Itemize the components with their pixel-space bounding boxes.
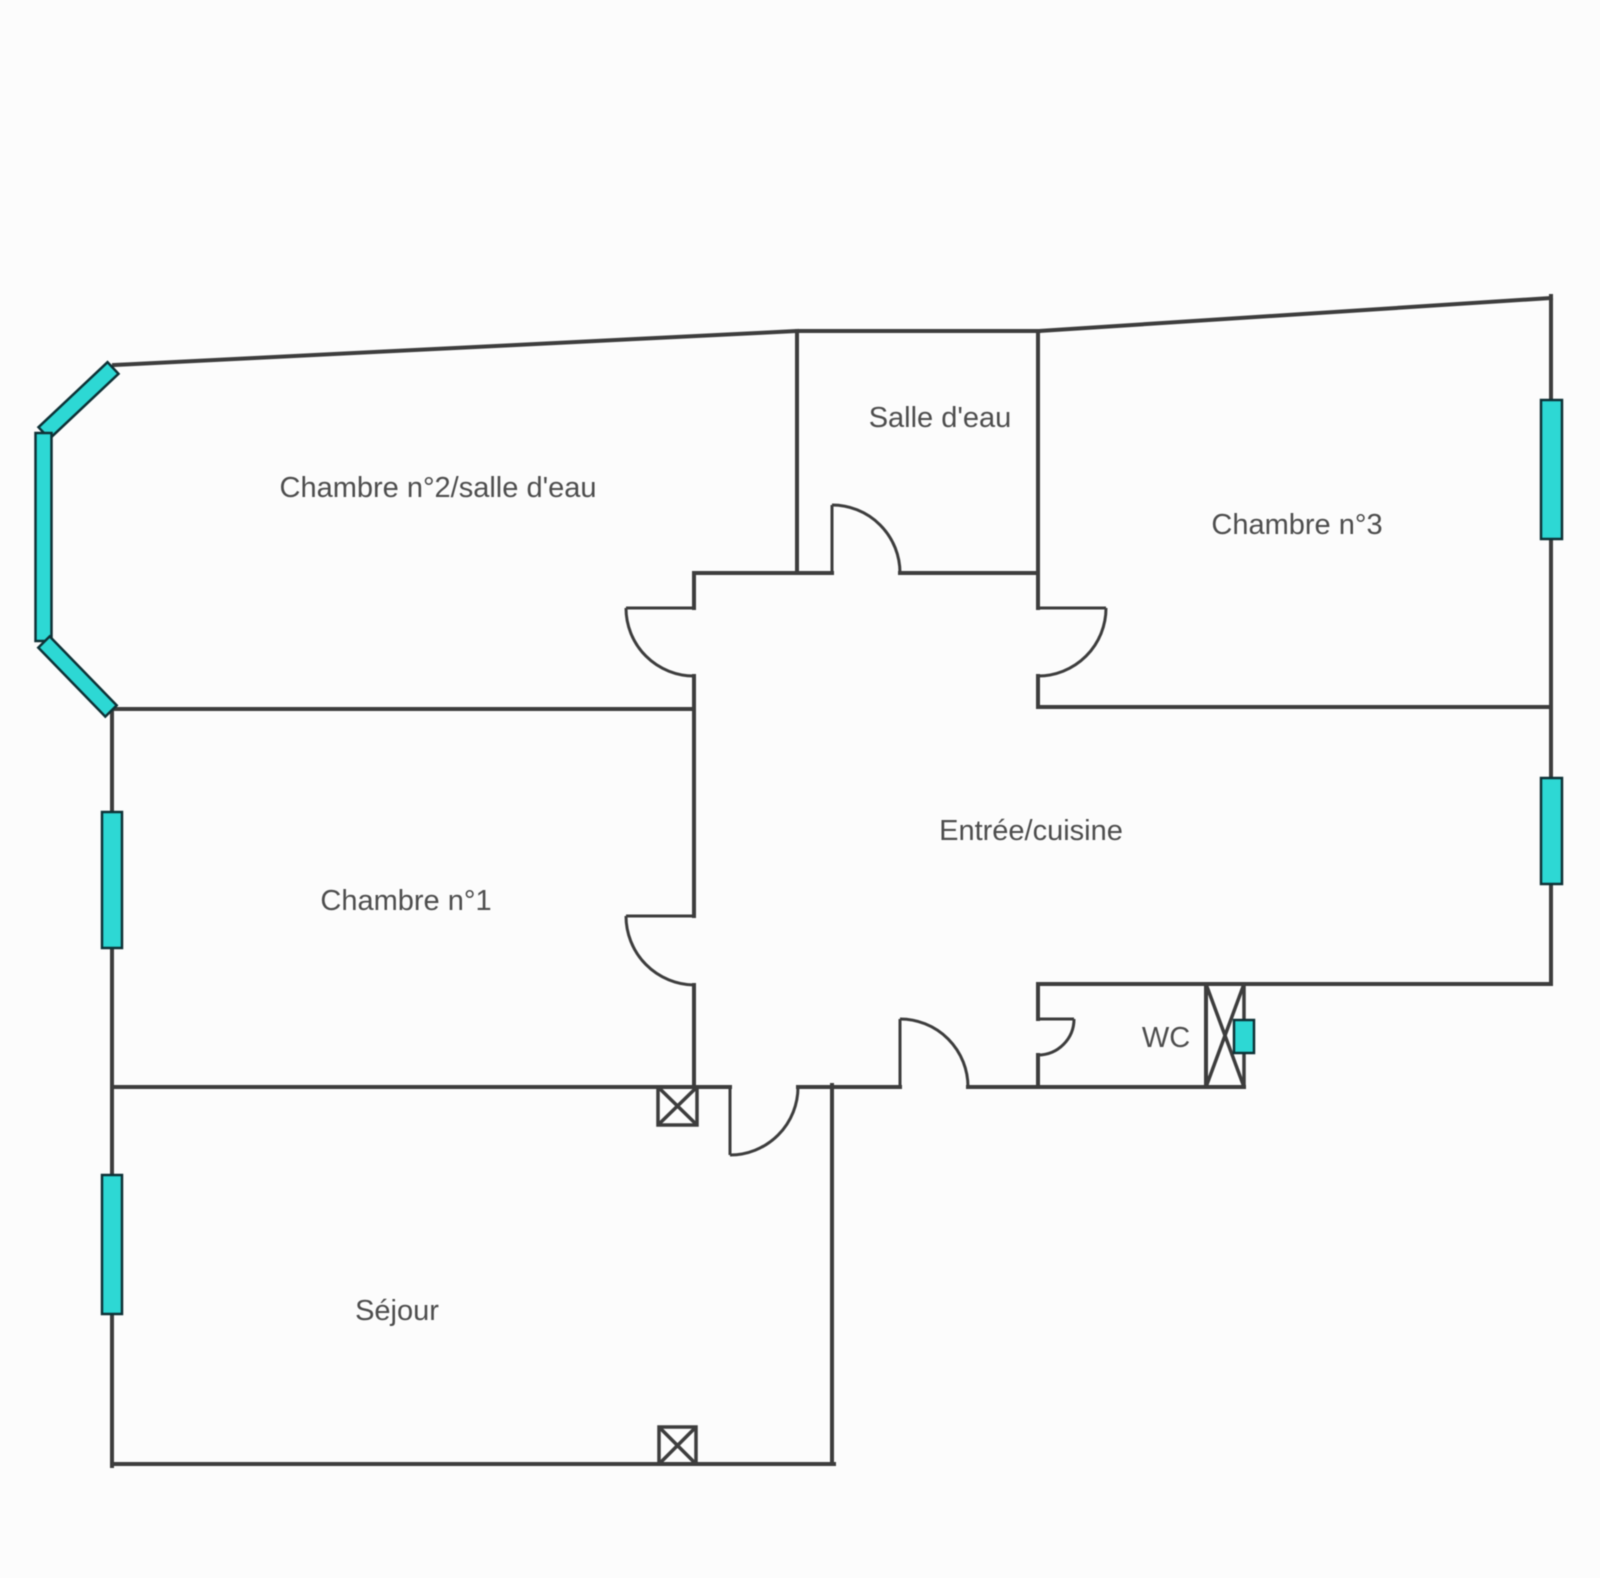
svg-text:Chambre n°3: Chambre n°3 <box>1211 509 1382 541</box>
svg-text:Entrée/cuisine: Entrée/cuisine <box>939 815 1123 847</box>
svg-text:Salle d'eau: Salle d'eau <box>869 402 1012 434</box>
svg-text:WC: WC <box>1142 1022 1190 1054</box>
svg-text:Chambre n°2/salle d'eau: Chambre n°2/salle d'eau <box>280 472 597 504</box>
svg-text:Séjour: Séjour <box>355 1295 439 1327</box>
svg-text:Chambre n°1: Chambre n°1 <box>320 885 491 917</box>
